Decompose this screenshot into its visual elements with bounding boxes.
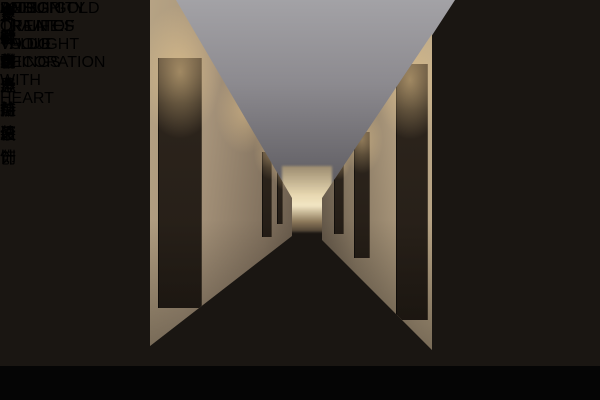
downlight	[256, 98, 258, 100]
downlight	[366, 100, 368, 102]
downlight	[388, 66, 390, 68]
poster-canvas: 3003 金思路 安徽省十佳设计 十七年坚	[0, 0, 600, 400]
downlight	[236, 64, 238, 66]
motto-en: INTEGRITY OF LIFE TO DO THINGS WITH HEAR…	[0, 0, 85, 108]
